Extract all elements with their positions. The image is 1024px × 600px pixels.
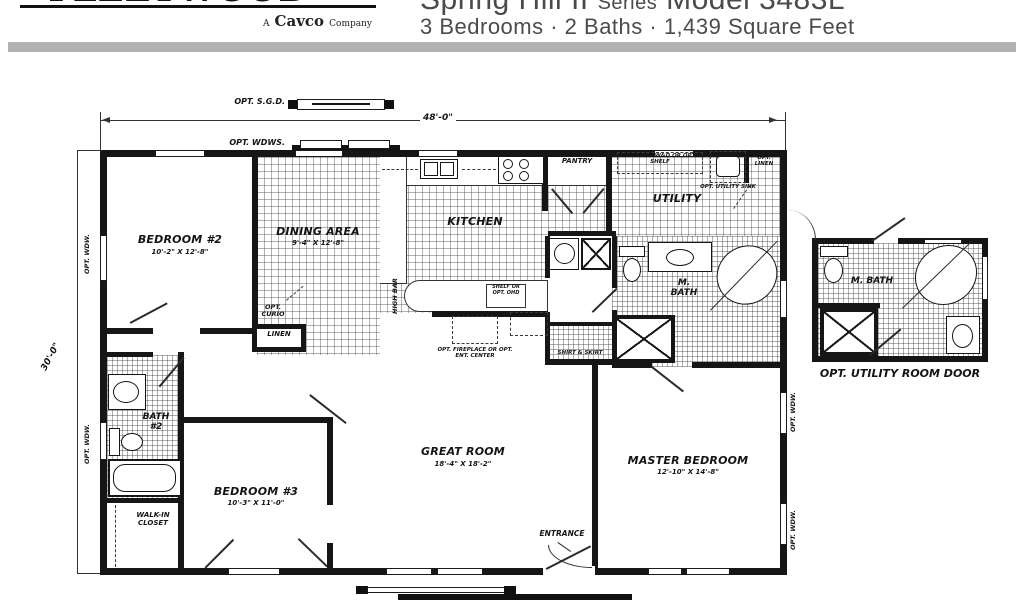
kitchen-label: KITCHEN [425, 216, 525, 228]
window-right-1 [780, 280, 787, 318]
window-right-2 [780, 392, 787, 434]
burner-icon-3 [503, 171, 513, 181]
mbath-shower-icon [613, 315, 675, 363]
wall-bath2-top [107, 352, 153, 357]
master-bedroom-size: 12'-10" X 14'-8" [628, 469, 748, 477]
wall-utility-hall [548, 231, 616, 236]
logo-underline [20, 5, 376, 8]
window-left-1 [100, 235, 107, 281]
opt-cabinet-dash-2 [462, 169, 496, 170]
inset-laundry-tub-bowl [952, 324, 973, 348]
walkin-closet-rod-dash [115, 505, 116, 567]
walkin-closet-door-leaf [204, 539, 233, 568]
page-subtitle: 3 Bedrooms · 2 Baths · 1,439 Square Feet [420, 14, 855, 40]
window-bottom-3 [437, 568, 483, 575]
entrance-label: ENTRANCE [530, 530, 594, 538]
bath2-label: BATH #2 [138, 412, 174, 432]
opt-fireplace-label: OPT. FIREPLACE OR OPT. ENT. CENTER [430, 347, 520, 359]
dining-size: 9'-4" X 12'-8" [272, 240, 364, 248]
inset-toilet-icon [824, 258, 843, 283]
walkin-closet-label: WALK-IN CLOSET [124, 512, 182, 528]
inset-wall-bottom [812, 356, 988, 362]
dining-label: DINING AREA [262, 226, 374, 238]
bottom-option-bar [398, 594, 632, 600]
logo-sub-name: Cavco [275, 12, 325, 30]
mbath-sink-icon [666, 249, 694, 266]
opt-wdws-label: OPT. WDWS. [195, 139, 285, 148]
wall-pantry-right [606, 157, 612, 235]
closet-floor [548, 324, 612, 362]
floorplan-page: FLEETWOOD HOMES A Cavco Company Spring H… [0, 0, 1024, 600]
wall-bedroom3-top [183, 417, 333, 423]
window-top-1 [155, 150, 205, 157]
window-left-2 [100, 422, 107, 460]
book-case-label: BOOK CASE [511, 313, 547, 319]
shirt-skirt-label: SHIRT & SKIRT [546, 350, 614, 356]
inset-toilet-tank-icon [820, 246, 848, 257]
opt-sgd-label: OPT. S.G.D. [195, 98, 285, 107]
bedroom2-door-leaf [130, 302, 168, 323]
book-case-box: BOOK CASE [510, 312, 548, 336]
wdws-symbol-window-1 [300, 140, 342, 149]
kitchen-counter-left [380, 157, 407, 284]
wall-bedroom2-bottom-b [200, 328, 258, 334]
depth-dim-tick-top [77, 150, 100, 151]
inset-wall-right-b [982, 300, 988, 362]
header-divider-bar [8, 42, 1016, 52]
depth-dimension-line [77, 150, 78, 574]
kitchen-sink-bowl-right [440, 162, 454, 176]
opt-linen-label: OPT. LINEN [748, 155, 780, 167]
inset-wall-top-a [812, 238, 874, 244]
wall-mbath-bottom-b [692, 362, 780, 368]
logo-subtitle: A Cavco Company [200, 11, 372, 30]
opt-cabinet-dash-1 [382, 169, 418, 170]
bedroom3-label: BEDROOM #3 [196, 486, 316, 498]
master-door-leaf [652, 366, 684, 392]
wall-closet-bottom [548, 359, 612, 365]
bedroom2-label: BEDROOM #2 [120, 234, 240, 246]
kitchen-sink-bowl-left [424, 162, 438, 176]
bath2-toilet-tank-icon [109, 428, 120, 456]
width-dimension-label: 48'-0" [420, 113, 456, 123]
opt-fireplace-box [452, 316, 498, 344]
bath2-tub-inner [113, 464, 176, 492]
window-right-3 [780, 503, 787, 545]
high-bar-counter [404, 280, 548, 312]
wall-closet-top [548, 322, 612, 326]
bottom-sgd-body [367, 587, 505, 593]
wall-bedroom3-right-b [327, 543, 333, 568]
opt-ohd-wd-box: OPT. OHD W&D OR OPT. SHELF [617, 152, 703, 174]
inset-wall-right-a [982, 238, 988, 256]
burner-icon-2 [519, 159, 529, 169]
opt-wdw-left-2: OPT. WDW. [84, 424, 91, 464]
mbath-label: M. BATH [664, 278, 704, 298]
bottom-sgd-cap-right [504, 586, 516, 594]
burner-icon-4 [519, 171, 529, 181]
bedroom3-closet-door-leaf [298, 538, 328, 567]
inset-window-top [924, 239, 962, 244]
bedroom2-size: 10'-2" X 12'-8" [130, 249, 230, 257]
window-bottom-4 [648, 568, 682, 575]
width-dim-arrow-left [102, 117, 110, 123]
inset-wall-left [812, 238, 818, 362]
high-bar-label: HIGH BAR [392, 278, 399, 314]
master-bedroom-label: MASTER BEDROOM [618, 455, 758, 467]
logo-sub-co: Company [329, 19, 372, 29]
washer-drum-icon [554, 243, 575, 264]
dryer-icon [581, 238, 611, 270]
opt-utility-room-door-label: OPT. UTILITY ROOM DOOR [812, 368, 988, 380]
inset-shower-icon [820, 308, 878, 356]
pantry-label: PANTRY [548, 158, 606, 166]
bath2-toilet-icon [121, 433, 143, 451]
title-series: Series [598, 0, 658, 14]
inset-opt-door-opening [982, 256, 988, 300]
wdws-symbol-window-2 [348, 140, 390, 149]
width-dim-arrow-right [769, 117, 777, 123]
opt-ohd-wd-label: OPT. OHD W&D OR OPT. SHELF [618, 153, 702, 165]
bath2-sink-icon [113, 381, 139, 403]
logo-sub-a: A [263, 19, 270, 29]
utility-sink-icon [716, 156, 740, 177]
depth-dim-tick-bottom [77, 573, 100, 574]
inset-connector-arc [788, 210, 816, 240]
window-bottom-1 [228, 568, 280, 575]
wall-mbath-left-a [612, 236, 617, 288]
wall-bedroom2-bottom-a [107, 328, 153, 334]
width-dim-tick-right [785, 112, 786, 150]
opt-utility-sink-label: OPT. UTILITY SINK [694, 184, 762, 190]
width-dim-tick-left [100, 112, 101, 150]
wall-bath2-closet [107, 498, 184, 503]
mbath-toilet-icon [623, 258, 641, 282]
window-top-2 [295, 150, 343, 157]
window-bottom-2 [386, 568, 432, 575]
bedroom3-size: 10'-3" X 11'-0" [206, 500, 306, 508]
mbath-toilet-tank-icon [619, 246, 645, 257]
great-room-size: 18'-4" X 18'-2" [413, 461, 513, 469]
linen-label: LINEN [258, 331, 300, 339]
shelf-opt-ohd-label: SHELF OR OPT. OHD [487, 285, 525, 296]
wall-left [100, 150, 107, 575]
window-top-3 [418, 150, 458, 157]
utility-label: UTILITY [627, 193, 727, 205]
shelf-opt-ohd-box: SHELF OR OPT. OHD [486, 284, 526, 308]
sgd-symbol-cap-right [384, 100, 394, 109]
opt-curio-label: OPT. CURIO [256, 304, 290, 319]
opt-wdw-left-1: OPT. WDW. [84, 234, 91, 274]
depth-dimension-label: 30'-0" [39, 340, 64, 375]
opt-wdw-right-2: OPT. WDW. [790, 510, 797, 550]
wall-bedroom3-right-a [327, 417, 333, 505]
opt-wdw-right-1: OPT. WDW. [790, 392, 797, 432]
great-room-label: GREAT ROOM [403, 446, 523, 458]
burner-icon-1 [503, 159, 513, 169]
sgd-symbol-slider [312, 103, 370, 105]
window-bottom-5 [686, 568, 730, 575]
inset-mbath-label: M. BATH [850, 276, 894, 286]
